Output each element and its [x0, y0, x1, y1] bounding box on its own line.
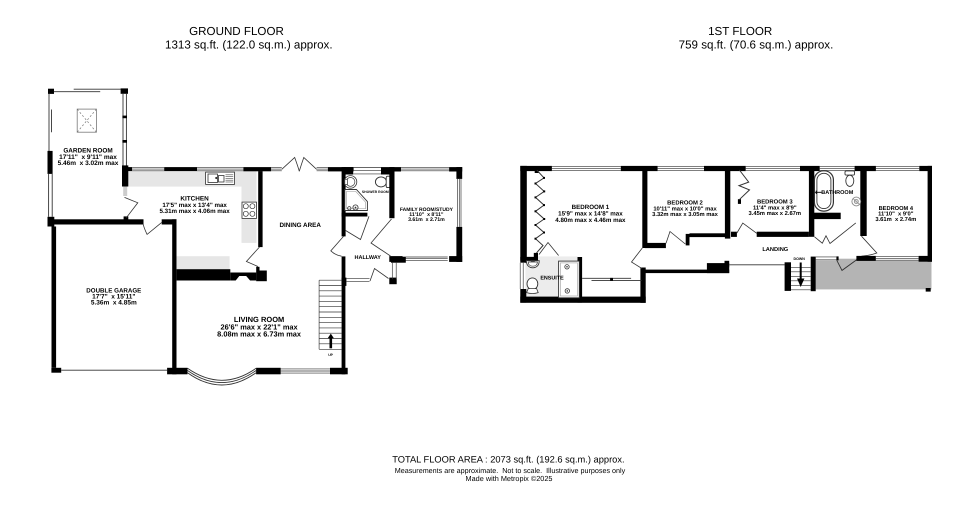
svg-text:3.45m max x 2.67m: 3.45m max x 2.67m	[749, 210, 802, 217]
svg-text:4.80m max x 4.46m max: 4.80m max x 4.46m max	[555, 217, 626, 224]
svg-text:GROUND FLOOR: GROUND FLOOR	[189, 25, 284, 38]
svg-text:8.08m max x 6.73m max: 8.08m max x 6.73m max	[217, 330, 302, 339]
svg-text:5.46m x 3.02m max: 5.46m x 3.02m max	[58, 160, 119, 167]
svg-text:UP: UP	[328, 353, 333, 357]
svg-text:ENSUITE: ENSUITE	[540, 276, 564, 282]
svg-text:DOWN: DOWN	[794, 257, 806, 261]
svg-text:SHOWER ROOM: SHOWER ROOM	[362, 190, 389, 194]
svg-text:LANDING: LANDING	[762, 247, 788, 253]
svg-text:759 sq.ft. (70.6 sq.m.) approx: 759 sq.ft. (70.6 sq.m.) approx.	[679, 38, 834, 51]
svg-text:Made with Metropix ©2025: Made with Metropix ©2025	[466, 474, 553, 483]
svg-text:DINING AREA: DINING AREA	[279, 222, 321, 229]
svg-text:1313 sq.ft. (122.0 sq.m.) appr: 1313 sq.ft. (122.0 sq.m.) approx.	[165, 38, 333, 51]
svg-text:3.61m x 2.71m: 3.61m x 2.71m	[408, 217, 445, 223]
svg-text:BATHROOM: BATHROOM	[821, 190, 853, 196]
svg-text:5.31m max x 4.06m max: 5.31m max x 4.06m max	[160, 208, 231, 215]
svg-text:3.32m max x 3.05m max: 3.32m max x 3.05m max	[652, 211, 719, 218]
svg-text:HALLWAY: HALLWAY	[355, 255, 382, 261]
svg-text:1ST FLOOR: 1ST FLOOR	[708, 25, 772, 38]
svg-text:3.61m x 2.74m: 3.61m x 2.74m	[875, 216, 916, 223]
svg-text:5.36m x 4.85m: 5.36m x 4.85m	[91, 300, 137, 307]
svg-text:TOTAL FLOOR AREA : 2073 sq.ft.: TOTAL FLOOR AREA : 2073 sq.ft. (192.6 sq…	[392, 454, 624, 464]
